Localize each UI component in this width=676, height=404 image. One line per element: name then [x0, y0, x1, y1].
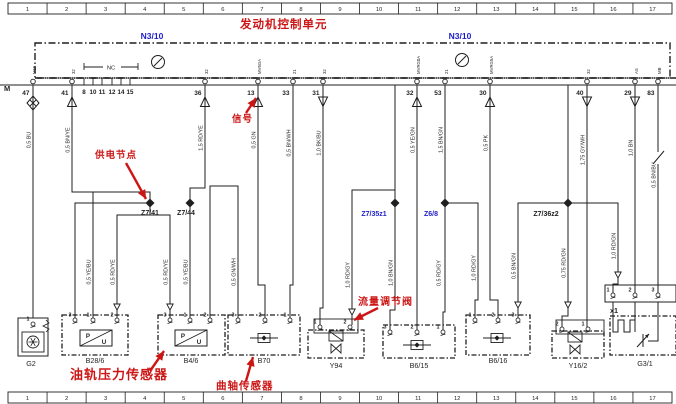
ruler-top-cell-label: 16	[610, 7, 616, 13]
wire-label: 0,5 BN/BU	[652, 162, 658, 188]
component-pin-circle	[611, 293, 615, 297]
wire-label: 0,5 BN/GN	[512, 253, 518, 279]
pin-number: 33	[282, 90, 290, 97]
ruler-bottom-cell-label: 11	[415, 396, 421, 402]
component-pin-circle	[560, 327, 564, 331]
component-box	[228, 315, 300, 355]
ruler-top-cell-label: 7	[260, 7, 263, 13]
component-pin-circle	[415, 330, 419, 334]
component-pin-circle	[168, 318, 172, 322]
pin-socket-circle	[70, 79, 75, 84]
component-box	[552, 331, 604, 358]
component-pin-number: 1	[314, 320, 317, 326]
wire-label: 0,5 YE/BU	[184, 259, 190, 284]
component-pin-circle	[263, 318, 267, 322]
component-label: B70	[258, 356, 271, 365]
component-pin-circle	[208, 318, 212, 322]
ruler-bottom-cell-label: 4	[143, 396, 147, 402]
splice-node-label: Z7/35z1	[361, 211, 386, 218]
component-label: B28/6	[86, 356, 105, 365]
component-pin-number: 1	[607, 288, 610, 294]
annotation-text: 曲轴传感器	[216, 379, 274, 392]
wire	[210, 186, 238, 318]
pin-connector-tag: 32	[71, 69, 76, 74]
group-pin-number: 12	[109, 89, 116, 96]
ruler-bottom-cell-label: 15	[571, 396, 577, 402]
splice-node-label: Z7/41	[141, 210, 159, 217]
pin-connector-tag: MB	[657, 67, 662, 74]
component-label: Y94	[330, 361, 343, 370]
wire-arrow	[515, 302, 521, 308]
wire-label: 1,5 BN/GN	[439, 127, 445, 153]
component-pin-number: 3	[512, 313, 515, 319]
component-label: G2	[26, 359, 36, 368]
pin-socket-circle	[656, 79, 661, 84]
wire-label: 1,0 RD/GN	[612, 233, 618, 259]
wire-label: 0,5 BN/YE	[66, 127, 72, 153]
splice-node-diamond	[146, 199, 155, 208]
symbol-inductive-core	[414, 342, 419, 347]
pin-number: 47	[22, 90, 30, 97]
component-box	[18, 318, 48, 356]
wire-label: 1,0 RD/GY	[346, 262, 352, 288]
pin-socket-circle	[31, 79, 36, 84]
ecu-code-n310-right: N3/10	[449, 31, 472, 41]
pin-connector-tag: MVRG0A	[416, 56, 421, 74]
wire-label: 0,5 YE/BU	[87, 259, 93, 284]
splice-node-label: Z7/44	[177, 210, 195, 217]
symbol-valve-bowtie	[570, 345, 575, 354]
symbol-inductive-core	[261, 335, 266, 340]
pin-number: 83	[647, 90, 655, 97]
ecu-circle-symbol-tick	[458, 56, 466, 64]
ruler-bottom-cell-label: 2	[65, 396, 68, 402]
component-pin-number: 1	[184, 313, 187, 319]
component-pin-circle	[516, 318, 520, 322]
symbol-inductive-core	[494, 335, 499, 340]
ruler-top-cell-label: 9	[338, 7, 341, 13]
ruler-bottom-cell-label: 3	[104, 396, 107, 402]
wire-arrow	[167, 304, 173, 310]
ruler-bottom-cell-label: 17	[649, 396, 655, 402]
wire	[290, 85, 293, 318]
component-label: Y16/2	[569, 361, 588, 370]
wire	[490, 85, 498, 318]
group-pin-number: 11	[99, 89, 106, 96]
ruler-bottom-cell-label: 12	[454, 396, 460, 402]
ruler-bottom-cell-label: 14	[532, 396, 539, 402]
annotation-arrowhead	[155, 351, 164, 361]
ruler-bottom-cell-label: 1	[26, 396, 29, 402]
ruler-top-cell-label: 1	[26, 7, 29, 13]
wire-label: 0,5 PK	[484, 135, 490, 152]
wire-label: 1,5 RD/YE	[199, 125, 205, 151]
component-pin-circle	[115, 318, 119, 322]
lambda-heater	[613, 316, 635, 332]
component-pin-number: 2	[259, 313, 262, 319]
ruler-top-cell-label: 14	[532, 7, 539, 13]
pin-number: 13	[247, 90, 255, 97]
ruler-bottom-cell-label: 8	[299, 396, 302, 402]
component-box	[308, 330, 364, 358]
ruler-top-cell-label: 6	[221, 7, 224, 13]
wire-label: 1,0 BN	[629, 140, 635, 157]
wire-label: 0,5 RD/YE	[164, 259, 170, 285]
annotation-text: 流量调节阀	[358, 295, 413, 308]
pin-socket-circle	[291, 79, 296, 84]
pin-socket-circle	[321, 79, 326, 84]
component-pin-number: 2	[629, 288, 632, 294]
ecu-box	[35, 43, 670, 78]
pin-number: 29	[624, 90, 632, 97]
component-pin-circle	[236, 318, 240, 322]
component-pin-number: 1	[284, 313, 287, 319]
ruler-top-cell-label: 17	[649, 7, 655, 13]
ruler-bottom-cell-label: 16	[610, 396, 616, 402]
component-pin-circle	[31, 322, 35, 326]
wire	[258, 85, 265, 318]
ruler-top-cell-label: 12	[454, 7, 460, 13]
component-pin-circle	[496, 318, 500, 322]
component-pin-circle	[441, 330, 445, 334]
ruler-top-cell-label: 3	[104, 7, 107, 13]
pin-connector-tag: MVRG5A	[489, 56, 494, 74]
symbol-pressure-u: U	[102, 339, 107, 346]
component-pin-number: 2	[204, 313, 207, 319]
wire-label: 0,5 BN/WH	[287, 129, 293, 156]
ruler-bottom-cell-label: 5	[182, 396, 185, 402]
component-box	[466, 315, 530, 355]
component-pin-number: 3	[232, 313, 235, 319]
ruler-bottom-cell-label: 13	[493, 396, 499, 402]
splice-node-diamond	[391, 199, 400, 208]
component-pin-number: 3	[384, 325, 387, 331]
wire-label: 1,0 BK/BU	[317, 130, 323, 155]
component-pin-circle	[348, 325, 352, 329]
component-label: B6/15	[410, 361, 429, 370]
component-pin-circle	[73, 318, 77, 322]
ecu-circle-symbol-tick	[154, 58, 162, 66]
wire	[518, 203, 568, 318]
pin-connector-tag: 21	[292, 69, 297, 74]
component-pin-circle	[188, 318, 192, 322]
pin-socket-circle	[256, 79, 261, 84]
group-pin-number: 15	[127, 89, 134, 96]
component-label: B4/6	[184, 356, 199, 365]
splice-node-label: Z7/36z2	[533, 211, 558, 218]
ruler-top-cell-label: 4	[143, 7, 147, 13]
ruler-bottom-cell-label: 7	[260, 396, 263, 402]
annotation-text: 信号	[232, 113, 253, 125]
wire	[443, 203, 445, 330]
annotation-text: 油轨压力传感器	[70, 367, 168, 382]
symbol-valve-bowtie	[331, 344, 336, 353]
wire-label: 0,75 RD/GN	[562, 248, 568, 277]
component-pin-circle	[633, 293, 637, 297]
component-label: x1	[610, 306, 618, 315]
pin-socket-circle	[488, 79, 493, 84]
component-pin-number: 2	[556, 322, 559, 328]
ruler-top-cell-label: 8	[299, 7, 302, 13]
lambda-probe-lead	[648, 316, 658, 341]
splice-node-diamond	[186, 199, 195, 208]
component-label: B6/16	[489, 356, 508, 365]
symbol-valve-diag	[568, 332, 582, 342]
pin-socket-circle	[443, 79, 448, 84]
component-pin-number: 2	[344, 320, 347, 326]
ruler-top-cell-label: 2	[65, 7, 68, 13]
wire-label: 0,5 YE/GN	[411, 127, 417, 153]
component-pin-number: 2	[111, 313, 114, 319]
ecu-code-n310-left: N3/10	[141, 31, 164, 41]
wire-label: 0,5 RD/YE	[111, 259, 117, 285]
engine-wiring-diagram: 1234567891011121314151617123456789101112…	[0, 0, 676, 404]
wire-label: 1,0 RD/GY	[472, 255, 478, 281]
component-pin-number: 1	[27, 317, 30, 323]
pin-connector-tag: 32	[322, 69, 327, 74]
pin-socket-circle	[415, 79, 420, 84]
pin-connector-tag: 32	[204, 69, 209, 74]
ruler-top-cell-label: 13	[493, 7, 499, 13]
component-pin-circle	[388, 330, 392, 334]
component-pin-number: 3	[164, 313, 167, 319]
component-box-connector	[605, 285, 676, 302]
pin-number: 53	[434, 90, 442, 97]
component-label: G3/1	[637, 359, 653, 368]
wire	[117, 203, 150, 318]
wire-label: 0,5 RD/GY	[437, 260, 443, 286]
symbol-valve-bowtie	[336, 344, 341, 353]
wire-label: 0,5 GN/WH	[232, 258, 238, 286]
component-pin-number: 1	[437, 325, 440, 331]
pin-number: 41	[61, 90, 69, 97]
symbol-pressure-diag	[175, 330, 207, 346]
ruler-top-cell-label: 15	[571, 7, 577, 13]
splice-node-label: Z6/8	[424, 211, 438, 218]
pin-number: 32	[406, 90, 414, 97]
bus-label-m: M	[4, 84, 10, 93]
symbol-valve-diag	[329, 331, 343, 341]
pin-connector-tag: MV6GA	[257, 59, 262, 74]
nc-label: NC	[107, 65, 115, 71]
pin-socket-circle	[585, 79, 590, 84]
wire	[568, 203, 618, 293]
wire-arrow	[615, 272, 621, 278]
ruler-bottom-cell-label: 10	[376, 396, 382, 402]
ruler-bottom-cell-label: 9	[338, 396, 341, 402]
pin-number: 31	[312, 90, 320, 97]
component-pin-number: 1	[582, 322, 585, 328]
wire-arrow	[114, 304, 120, 310]
pin-socket-circle	[203, 79, 208, 84]
wire-arrow	[565, 302, 571, 308]
group-pin-number: 8	[82, 89, 86, 96]
ruler-bottom-cell-label: 6	[221, 396, 224, 402]
wire-label: 0,5 BU	[27, 132, 33, 149]
annotation-text: 供电节点	[94, 149, 137, 161]
component-pin-number: 2	[411, 325, 414, 331]
symbol-pressure-p: P	[86, 333, 90, 340]
component-pin-number: 1	[469, 313, 472, 319]
group-pin-number: 10	[90, 89, 97, 96]
component-pin-circle	[318, 325, 322, 329]
symbol-pressure-diag	[80, 330, 112, 346]
pin-connector-tag: M15	[32, 65, 37, 74]
symbol-pressure-p: P	[181, 333, 185, 340]
component-pin-number: 1	[87, 313, 90, 319]
pin-connector-tag: 21	[444, 69, 449, 74]
wire	[320, 85, 323, 325]
group-pin-number: 14	[118, 89, 125, 96]
pin-socket-circle	[633, 79, 638, 84]
annotation-text: 发动机控制单元	[239, 17, 328, 31]
pin-connector-tag: 32	[586, 69, 591, 74]
ruler-top-cell-label: 10	[376, 7, 382, 13]
ruler-top-cell-label: 11	[415, 7, 421, 13]
component-pin-circle	[288, 318, 292, 322]
ruler-top-cell-label: 5	[182, 7, 185, 13]
wiring-diagram-page: 1234567891011121314151617123456789101112…	[0, 0, 676, 404]
component-pin-circle	[473, 318, 477, 322]
component-pin-circle	[656, 293, 660, 297]
symbol-valve-bowtie	[575, 345, 580, 354]
splice-node-diamond	[564, 199, 573, 208]
wire-arrow	[349, 309, 355, 315]
pin-number: 36	[194, 90, 202, 97]
pin-connector-tag: AS	[634, 68, 639, 74]
component-pin-number: 3	[652, 288, 655, 294]
component-pin-circle	[91, 318, 95, 322]
pin-number: 40	[576, 90, 584, 97]
component-pin-number: 3	[69, 313, 72, 319]
splice-node-diamond	[441, 199, 450, 208]
wire-label: 0,5 GN	[252, 131, 258, 148]
symbol-pressure-u: U	[197, 339, 202, 346]
component-pin-number: 2	[492, 313, 495, 319]
pin-number: 30	[479, 90, 487, 97]
wire-label: 1,0 BN/GN	[389, 260, 395, 286]
wire-label: 1,75 GY/WH	[581, 135, 587, 165]
